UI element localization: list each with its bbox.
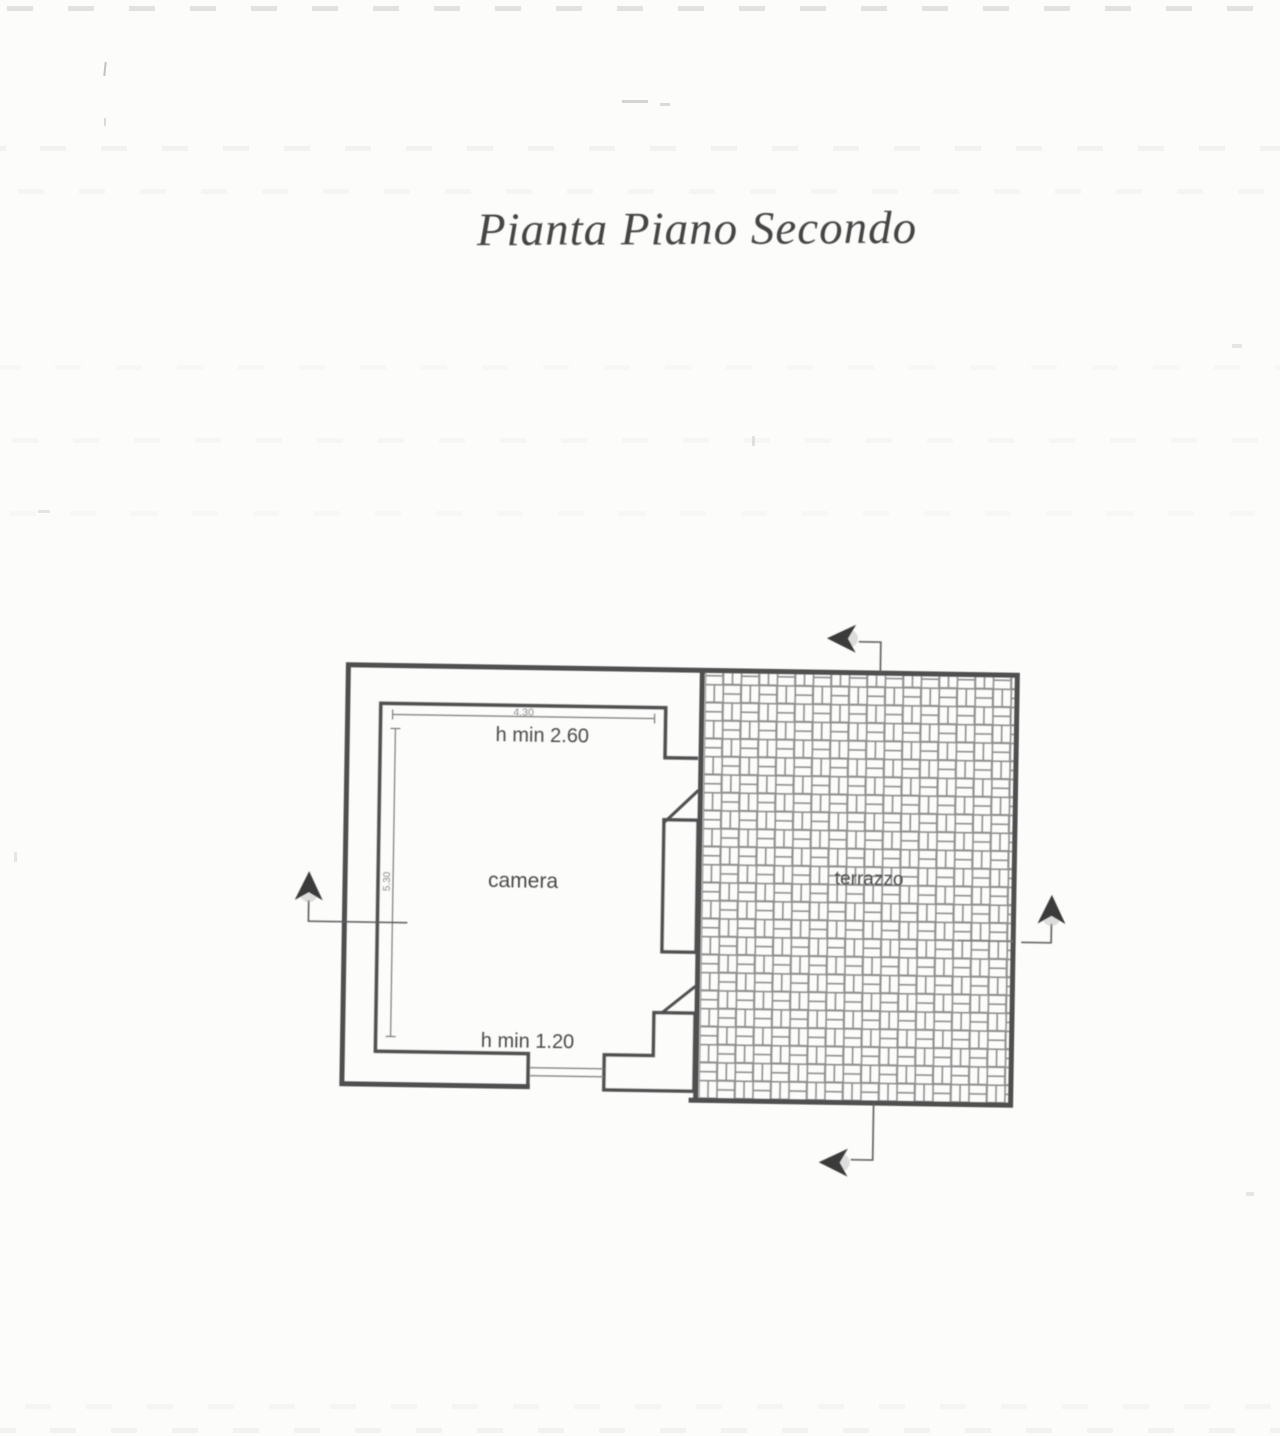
bottom-wall-opening: [530, 1068, 604, 1077]
depth-dimension-value: 5.30: [382, 871, 393, 891]
section-arrow-left-icon: [827, 624, 858, 652]
opening-splay-lower: [662, 986, 695, 1014]
opening-splay-upper: [665, 790, 698, 823]
height-note-top: h min 2.60: [495, 724, 589, 747]
section-arrow-up-icon: [1037, 895, 1065, 926]
floor-plan-drawing: 4.30 h min 2.60 5.30 camera terrazzo h m…: [0, 0, 1280, 1436]
height-note-bottom: h min 1.20: [481, 1030, 575, 1053]
reference-tick: [957, 940, 1013, 941]
section-arrow-up-icon: [295, 871, 323, 902]
lower-wall-block: [604, 1012, 695, 1091]
width-dimension-value: 4.30: [513, 706, 534, 718]
opening-pier: [662, 820, 698, 953]
scanned-document-page: Pianta Piano Secondo: [0, 0, 1280, 1436]
section-arrow-left-icon: [818, 1148, 849, 1176]
room-label: camera: [488, 869, 559, 893]
section-marker-right: [1021, 894, 1066, 943]
section-marker-top: [826, 624, 881, 673]
section-marker-bottom: [818, 1102, 873, 1177]
terrace-label: terrazzo: [835, 868, 904, 890]
